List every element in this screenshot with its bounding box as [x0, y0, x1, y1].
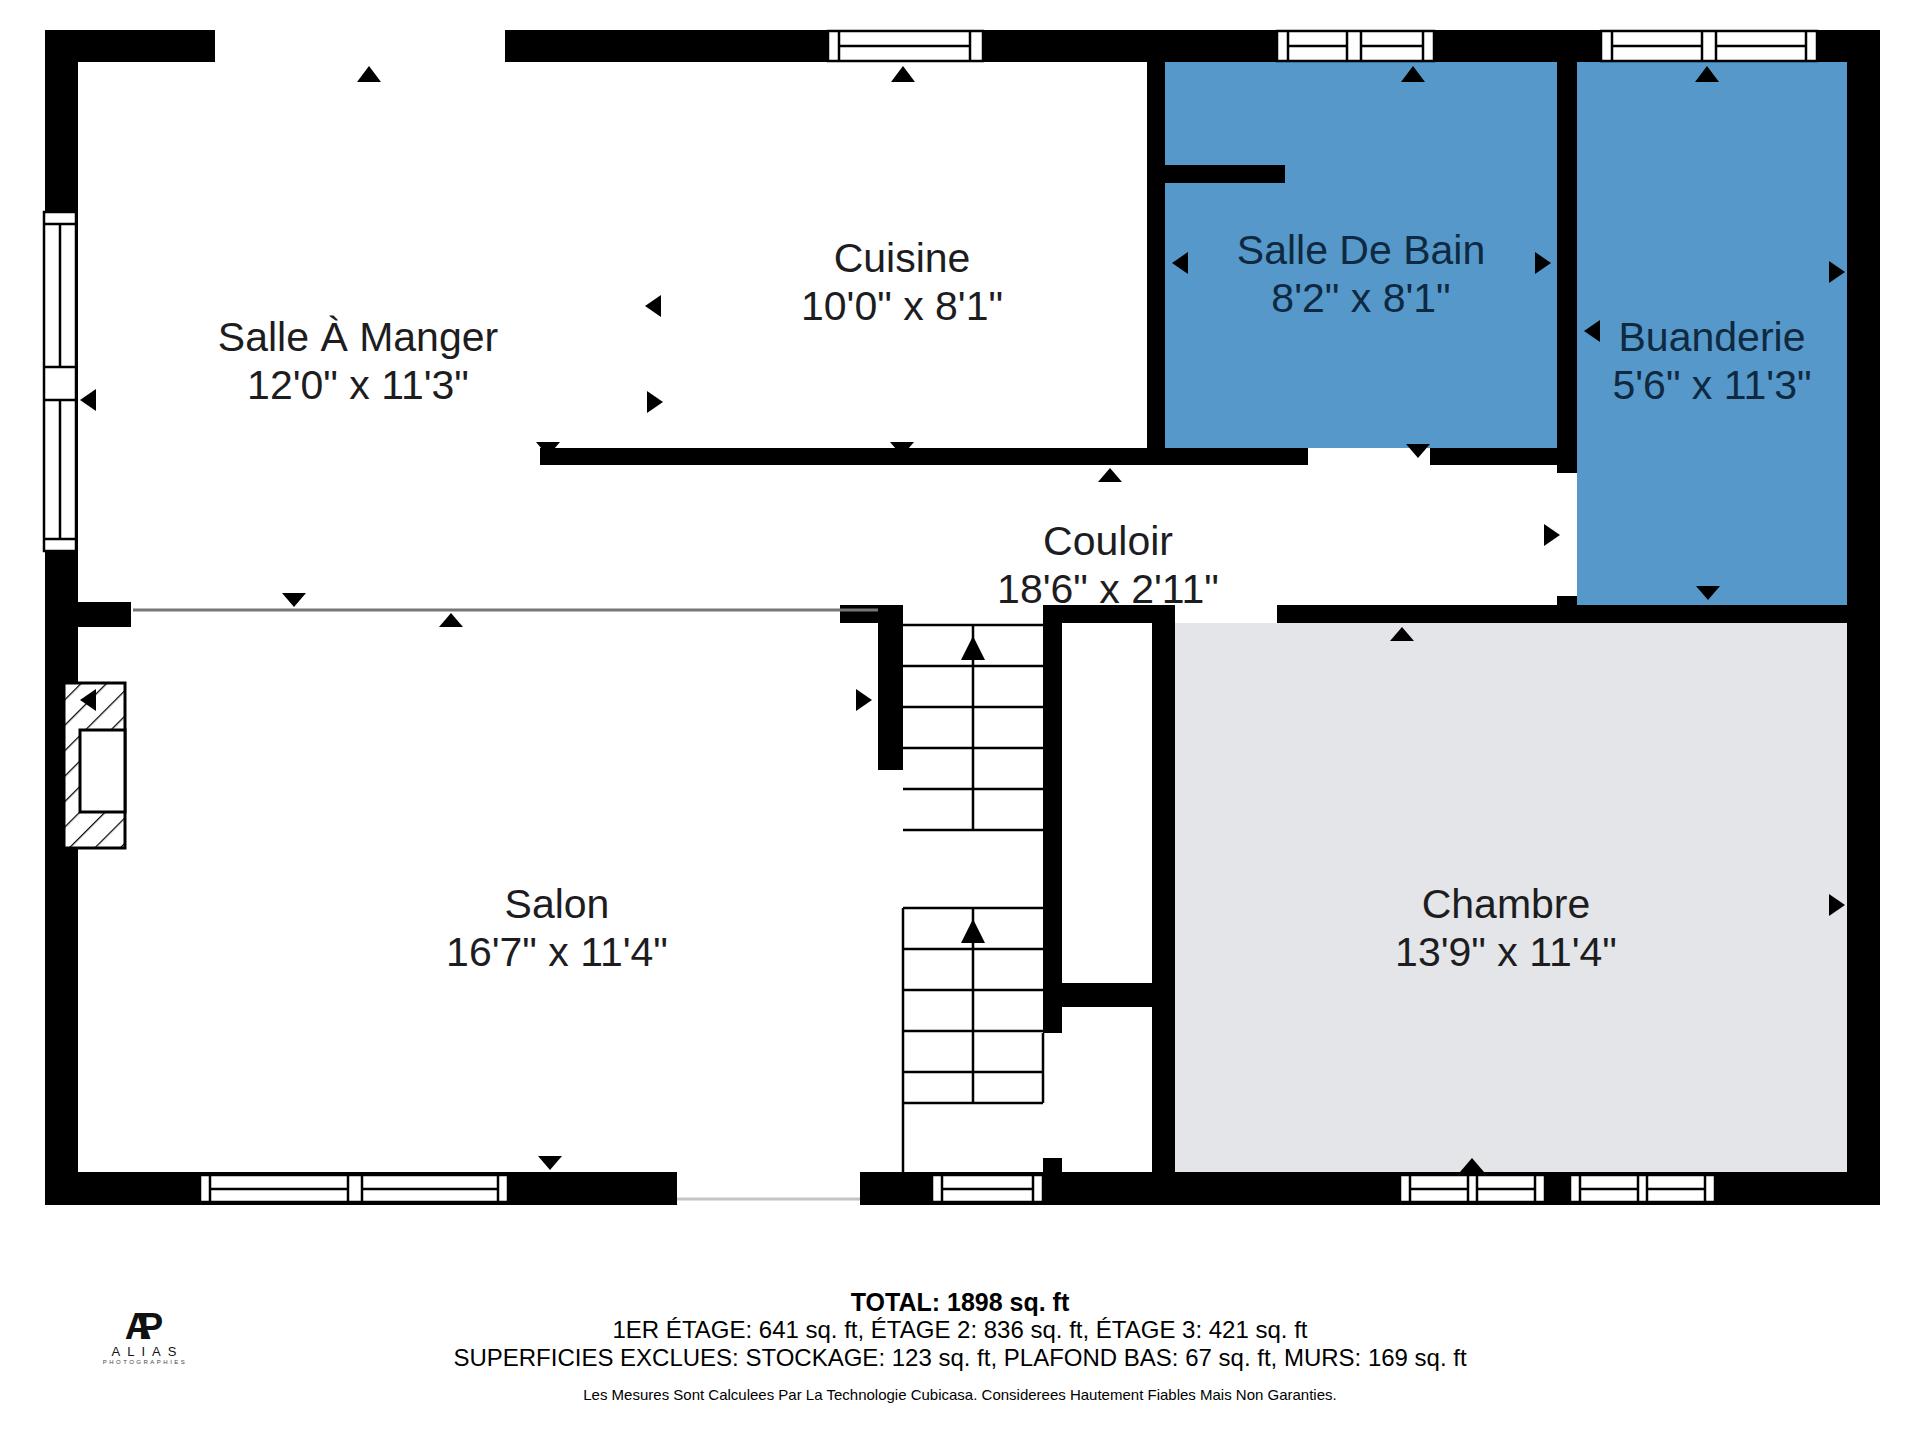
room-label-salle-de-bain: Salle De Bain 8'2" x 8'1" [1237, 226, 1485, 322]
opening-marker-icon [645, 295, 661, 317]
room-dims: 10'0" x 8'1" [801, 282, 1003, 330]
opening-marker-icon [439, 613, 463, 627]
window-dining-left [44, 212, 76, 551]
wall-openings [215, 28, 860, 1207]
opening-top [215, 28, 505, 64]
opening-bottom-entry [677, 1170, 860, 1207]
wall-stair-right [1043, 623, 1062, 1033]
logo-letter-p: P [139, 1306, 164, 1347]
room-dims: 16'7" x 11'4" [446, 928, 668, 976]
room-label-couloir: Couloir 18'6" x 2'11" [997, 517, 1219, 613]
opening-marker-icon [1544, 524, 1560, 546]
room-name: Cuisine [801, 234, 1003, 282]
area-summary: TOTAL: 1898 sq. ft 1ER ÉTAGE: 641 sq. ft… [0, 1288, 1920, 1404]
disclaimer: Les Mesures Sont Calculees Par La Techno… [0, 1386, 1920, 1404]
wall-stair-left [878, 605, 903, 770]
room-dims: 18'6" x 2'11" [997, 565, 1219, 613]
room-name: Buanderie [1612, 313, 1811, 361]
window-stair-bottom [932, 1175, 1043, 1202]
room-name: Salon [446, 880, 668, 928]
logo-name: ALIAS [89, 1345, 199, 1359]
excluded-areas: SUPERFICIES EXCLUES: STOCKAGE: 123 sq. f… [0, 1344, 1920, 1372]
floor-plan-page: Salle À Manger 12'0" x 11'3" Cuisine 10'… [0, 0, 1920, 1440]
opening-marker-icon [1098, 468, 1122, 482]
wall-hall-top-right [1430, 448, 1557, 465]
wall-kitchen-bath [1147, 30, 1165, 465]
wall-bedroom-left [1152, 605, 1175, 1172]
stair-arrow-icon [961, 919, 985, 943]
opening-marker-icon [891, 66, 915, 82]
room-label-cuisine: Cuisine 10'0" x 8'1" [801, 234, 1003, 330]
total-area: TOTAL: 1898 sq. ft [0, 1288, 1920, 1316]
staircase [903, 625, 1043, 1172]
wall-stair-right-stub [1043, 1158, 1062, 1174]
room-label-chambre: Chambre 13'9" x 11'4" [1395, 880, 1617, 976]
room-name: Couloir [997, 517, 1219, 565]
stair-arrow-icon [961, 636, 985, 660]
room-name: Chambre [1395, 880, 1617, 928]
room-dims: 5'6" x 11'3" [1612, 361, 1811, 409]
window-laundry [1601, 31, 1817, 61]
wall-bedroom-top [1277, 605, 1880, 623]
opening-marker-icon [647, 391, 663, 413]
alias-logo: AP ALIAS PHOTOGRAPHIES [89, 1310, 199, 1366]
room-label-salle-a-manger: Salle À Manger 12'0" x 11'3" [218, 313, 498, 409]
opening-marker-icon [80, 389, 96, 411]
opening-marker-icon [856, 689, 872, 711]
room-dims: 12'0" x 11'3" [218, 361, 498, 409]
room-dims: 8'2" x 8'1" [1237, 274, 1485, 322]
room-label-buanderie: Buanderie 5'6" x 11'3" [1612, 313, 1811, 409]
window-bedroom-bottom-1 [1400, 1175, 1545, 1202]
opening-marker-icon [538, 1156, 562, 1170]
window-kitchen [828, 31, 983, 61]
floor-plan-drawing [0, 0, 1920, 1440]
room-label-salon: Salon 16'7" x 11'4" [446, 880, 668, 976]
window-bathroom [1277, 31, 1434, 61]
opening-marker-icon [1406, 444, 1430, 458]
opening-marker-icon [282, 593, 306, 607]
opening-marker-icon [357, 66, 381, 82]
room-name: Salle À Manger [218, 313, 498, 361]
floor-areas: 1ER ÉTAGE: 641 sq. ft, ÉTAGE 2: 836 sq. … [0, 1316, 1920, 1344]
wall-closet-bottom [1055, 983, 1160, 1007]
wall-bath-stub [1165, 165, 1285, 183]
logo-monogram: AP [89, 1310, 199, 1344]
window-bedroom-bottom-2 [1570, 1175, 1715, 1202]
wall-diningroom-stub [65, 602, 131, 627]
wall-bath-laundry [1557, 30, 1577, 473]
fireplace-firebox [80, 730, 125, 812]
wall-hall-top-left [540, 448, 1308, 465]
window-living-bottom [200, 1175, 508, 1202]
room-dims: 13'9" x 11'4" [1395, 928, 1617, 976]
room-name: Salle De Bain [1237, 226, 1485, 274]
logo-subtitle: PHOTOGRAPHIES [89, 1359, 199, 1366]
